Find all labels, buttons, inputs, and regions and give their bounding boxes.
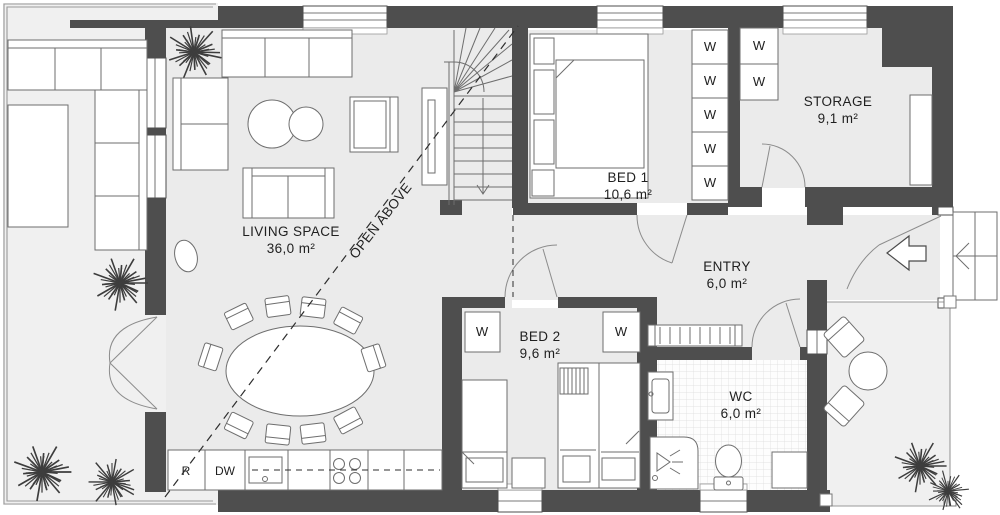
entrance-steps	[953, 212, 997, 300]
outdoor-table	[8, 105, 68, 227]
nightstand	[532, 170, 554, 196]
dining-table	[226, 326, 374, 416]
room-name: BED 2	[519, 329, 560, 344]
wash-basin	[648, 372, 673, 420]
coffee-table-small	[289, 107, 323, 141]
room-area: 9,1 m²	[818, 111, 859, 126]
armchair	[350, 97, 398, 152]
room-area: 36,0 m²	[267, 241, 316, 256]
wardrobe-label: W	[704, 73, 717, 88]
window-top-bed1	[597, 6, 663, 34]
front-door-jamb-top	[938, 207, 953, 215]
loveseat	[173, 78, 228, 170]
nightstand	[512, 458, 545, 488]
wardrobe-label: W	[704, 175, 717, 190]
pillow	[602, 458, 635, 480]
blanket	[556, 60, 644, 168]
wardrobe-label: W	[753, 74, 766, 89]
room-name: BED 1	[607, 170, 648, 185]
wardrobe-label: W	[704, 141, 717, 156]
pillow	[534, 70, 554, 114]
room-area: 6,0 m²	[721, 406, 762, 421]
wardrobe-label: W	[476, 324, 489, 339]
bunk-bed	[558, 363, 640, 488]
wardrobe-label: W	[704, 107, 717, 122]
pillow	[563, 456, 590, 482]
room-area: 9,6 m²	[520, 346, 561, 361]
window-left-1	[145, 58, 166, 128]
room-name: ENTRY	[703, 259, 751, 274]
room-name: STORAGE	[804, 94, 873, 109]
room-area: 6,0 m²	[707, 276, 748, 291]
kitchen: R DW	[168, 450, 442, 490]
patio-table	[849, 352, 887, 390]
washer-cabinet	[772, 452, 807, 488]
floor-plan-drawing: R DW W W W W W W W	[0, 0, 1000, 515]
wardrobe-label: W	[615, 324, 628, 339]
dishwasher-label: DW	[215, 464, 236, 478]
room-name: WC	[729, 389, 752, 404]
refrigerator-label: R	[182, 464, 191, 478]
wardrobe-column: W W W W W	[692, 30, 728, 200]
room-area: 10,6 m²	[604, 187, 653, 202]
window-left-2	[145, 135, 166, 198]
wardrobe-label: W	[753, 38, 766, 53]
storage-shelf	[910, 95, 932, 185]
single-bed	[462, 380, 507, 488]
floor-plan: R DW W W W W W W W	[0, 0, 1000, 515]
pillow	[534, 120, 554, 164]
shower	[650, 437, 698, 489]
window-top-storage	[783, 6, 867, 34]
toilet	[714, 445, 743, 490]
entry-bench	[648, 325, 742, 346]
sofa-middle	[243, 168, 334, 218]
room-name: LIVING SPACE	[242, 224, 340, 239]
wardrobe-label: W	[704, 39, 717, 54]
sofa-top	[222, 30, 352, 77]
